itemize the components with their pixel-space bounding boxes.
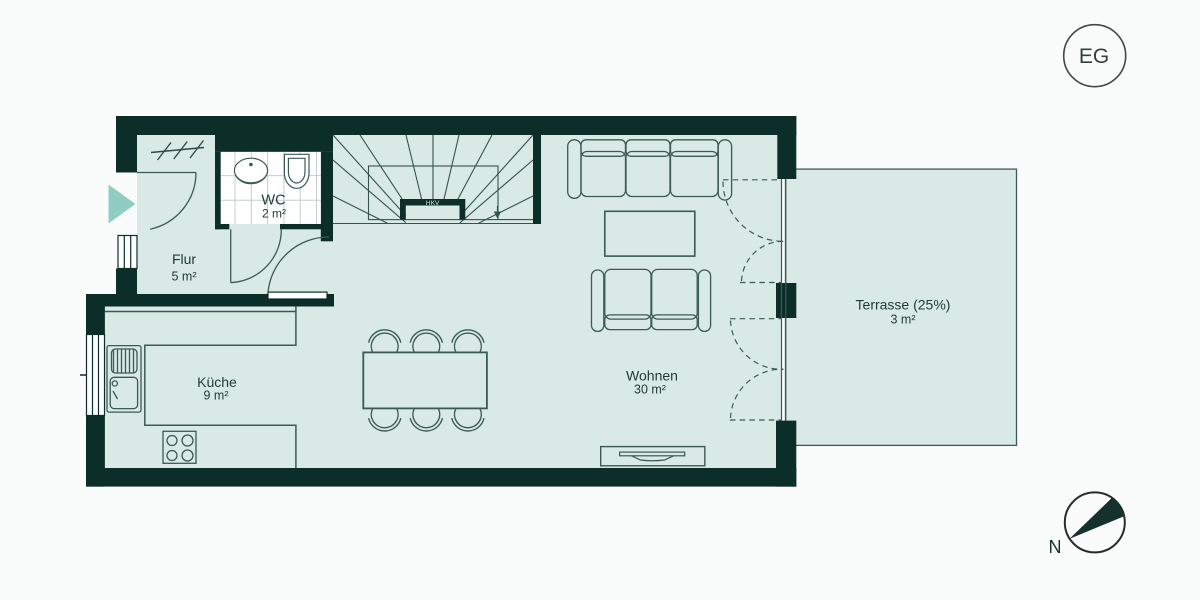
svg-text:EG: EG	[1079, 45, 1109, 68]
svg-text:N: N	[1049, 537, 1062, 557]
svg-text:30 m²: 30 m²	[634, 383, 666, 397]
svg-text:2 m²: 2 m²	[262, 207, 286, 221]
svg-text:5 m²: 5 m²	[172, 270, 197, 284]
svg-text:HKV: HKV	[426, 200, 440, 207]
svg-text:9 m²: 9 m²	[204, 389, 229, 403]
svg-text:Flur: Flur	[172, 251, 196, 267]
svg-text:Wohnen: Wohnen	[626, 368, 678, 384]
svg-text:Terrasse (25%): Terrasse (25%)	[856, 297, 951, 313]
svg-text:3 m²: 3 m²	[891, 313, 916, 327]
